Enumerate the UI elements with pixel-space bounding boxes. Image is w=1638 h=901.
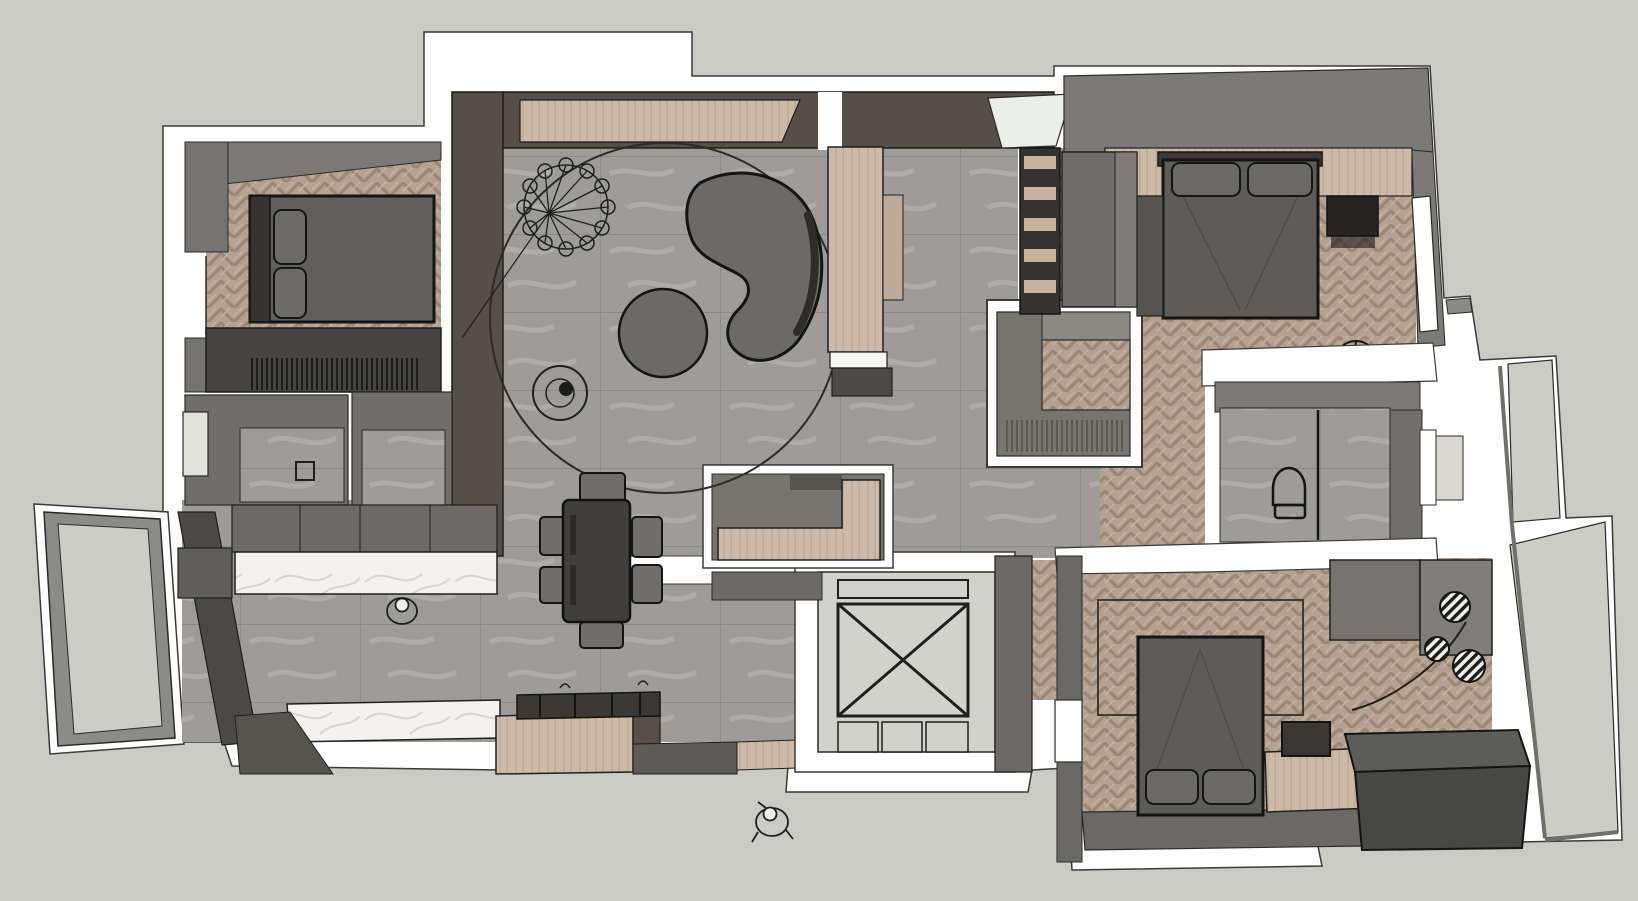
bedroom3-pillow-2	[1203, 770, 1255, 804]
bathroom-floor	[1220, 408, 1390, 542]
cabinet-step	[883, 195, 903, 300]
closet-shelf-face	[1042, 312, 1130, 340]
bedroom1-pillow-2	[274, 268, 306, 318]
bedroom2-pillow-1	[1172, 163, 1240, 196]
table-slot-2	[570, 565, 576, 605]
dining-chair-north	[580, 473, 625, 502]
nightstand-shadow	[1331, 236, 1375, 248]
bedroom3-window-west	[1055, 700, 1082, 762]
counter-marble-top	[235, 552, 497, 594]
bedroom3-wardrobe-1	[1330, 560, 1420, 640]
bedroom1-pillow-1	[274, 210, 306, 264]
elevator-panel-2	[882, 722, 922, 752]
vase	[559, 382, 573, 396]
person1-head	[396, 599, 409, 612]
bedroom2-pillow-2	[1248, 163, 1312, 196]
shelf-4	[1024, 249, 1056, 262]
balcony-left	[44, 512, 175, 746]
nightstand	[1327, 196, 1378, 236]
chest-front-face	[1355, 766, 1530, 850]
entry-nook-notch	[790, 474, 842, 490]
counter-marble-bottom	[287, 700, 500, 742]
dining-chair-w1	[540, 517, 565, 555]
bathroom-left-window	[183, 412, 208, 476]
bathroom-right-wall-top-white	[1202, 343, 1437, 386]
closet-floor-pocket	[1042, 340, 1130, 410]
table-slot-1	[570, 515, 576, 555]
kitchen-upper-cabinets	[232, 505, 497, 552]
shelf-5	[1024, 280, 1056, 293]
bedroom2-wall-top	[1064, 68, 1433, 152]
tv-wall-wood-inset	[520, 100, 800, 142]
party-wall-dark-wood	[452, 92, 503, 556]
pendant-ball-3	[1453, 650, 1485, 682]
cabinet-dark-base	[832, 368, 892, 396]
hall-wood-strip	[1032, 560, 1057, 700]
bathroom-left-floor	[240, 428, 344, 502]
elevator-side-wall-dark	[995, 556, 1032, 772]
closet-hatch	[1004, 420, 1124, 452]
wood-floor-strip	[737, 740, 798, 770]
desk-stool	[1282, 722, 1330, 756]
balcony-right-floor-upper	[1508, 360, 1560, 522]
pendant-ball-1	[1440, 592, 1470, 622]
bedroom2-bench	[1137, 196, 1163, 316]
round-ottoman	[619, 289, 707, 377]
bathroom-left	[183, 395, 348, 505]
bedroom1-bed-headboard	[250, 196, 270, 322]
dining-chair-e2	[632, 565, 662, 603]
bathroom-wall-right	[1388, 410, 1422, 545]
pendant-ball-2	[1425, 637, 1449, 661]
bathroom-window-frame	[1420, 430, 1436, 505]
kitchen-cabinet-end	[178, 548, 232, 598]
cabinet-white-bar	[830, 352, 887, 368]
entry-mat-gray	[712, 572, 822, 600]
cabinet-body	[828, 147, 883, 352]
elevator-panel-3	[926, 722, 968, 752]
walkway-dark-marble	[633, 742, 737, 774]
bedroom3-pillow-1	[1146, 770, 1198, 804]
chest-top-face	[1345, 730, 1530, 772]
shelf-3	[1024, 218, 1056, 231]
shelf-1	[1024, 156, 1056, 169]
elevator-panel-1	[838, 722, 878, 752]
elevator	[795, 552, 1032, 772]
balcony-left-floor	[58, 524, 162, 734]
storage-chest	[1345, 730, 1530, 850]
bedroom1-wardrobe-clothes-hatch	[250, 358, 420, 390]
elevator-top-bar	[838, 580, 968, 598]
bedroom2-wardrobe-light	[1115, 152, 1137, 307]
dining-chair-w2	[540, 567, 565, 603]
person2-head	[764, 808, 777, 821]
ac-ledge	[1446, 298, 1472, 314]
shelf-2	[1024, 187, 1056, 200]
bathroom-window-pane	[1436, 436, 1463, 500]
dining-chair-south	[580, 622, 623, 648]
hall-door-gap	[818, 92, 842, 150]
island-cooktop	[517, 692, 660, 719]
bedroom1-wall-left-upper	[185, 142, 228, 252]
floor-plan-canvas	[0, 0, 1638, 901]
island-wood-face	[496, 712, 633, 774]
elevator-door-panels	[838, 722, 968, 752]
tv-media-wall	[503, 92, 1072, 150]
dining-chair-e1	[632, 517, 662, 557]
walk-in-closet	[987, 300, 1142, 467]
